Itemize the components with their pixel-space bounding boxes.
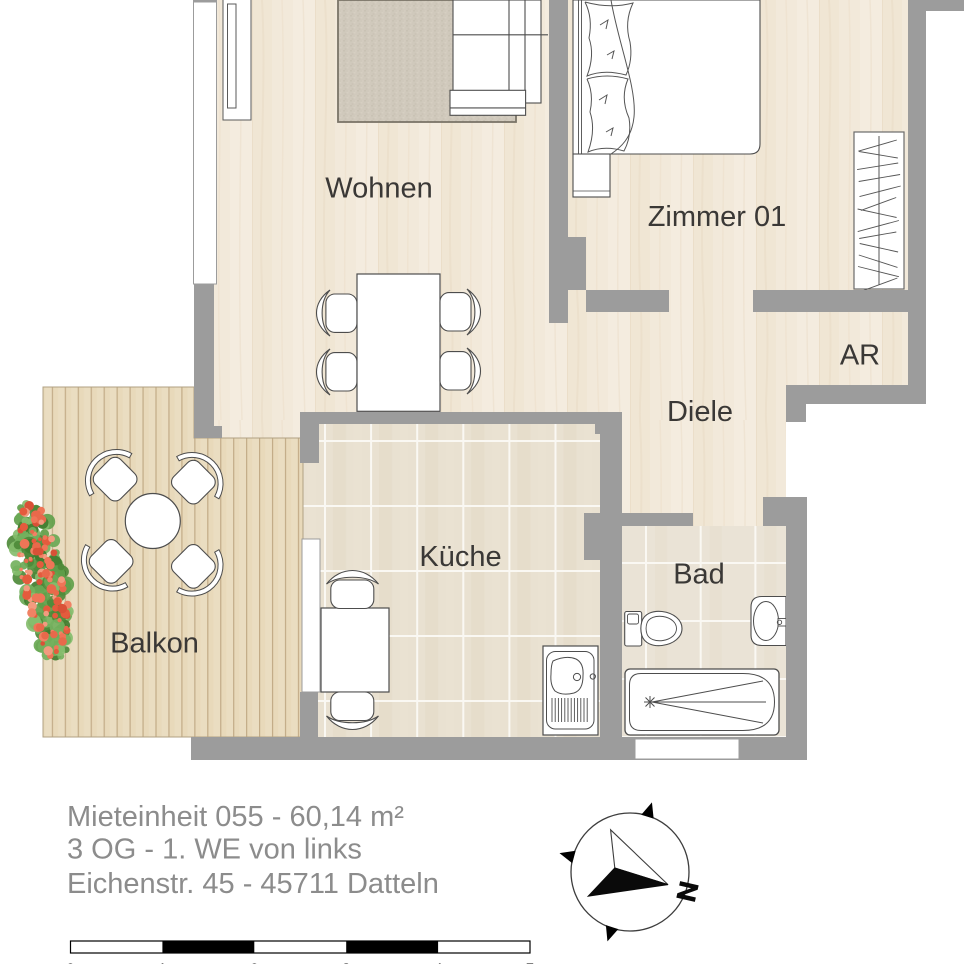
svg-text:Mieteinheit 055 - 60,14 m²: Mieteinheit 055 - 60,14 m²	[67, 801, 404, 833]
svg-text:Küche: Küche	[419, 541, 501, 573]
svg-text:Eichenstr. 45 - 45711 Datteln: Eichenstr. 45 - 45711 Datteln	[67, 868, 439, 900]
svg-text:AR: AR	[840, 340, 880, 372]
svg-text:Diele: Diele	[667, 396, 733, 428]
svg-text:Zimmer 01: Zimmer 01	[648, 201, 787, 233]
svg-text:Wohnen: Wohnen	[325, 173, 433, 205]
svg-text:3 OG - 1. WE von links: 3 OG - 1. WE von links	[67, 834, 362, 866]
svg-text:Balkon: Balkon	[110, 628, 199, 660]
svg-text:Bad: Bad	[673, 559, 725, 591]
